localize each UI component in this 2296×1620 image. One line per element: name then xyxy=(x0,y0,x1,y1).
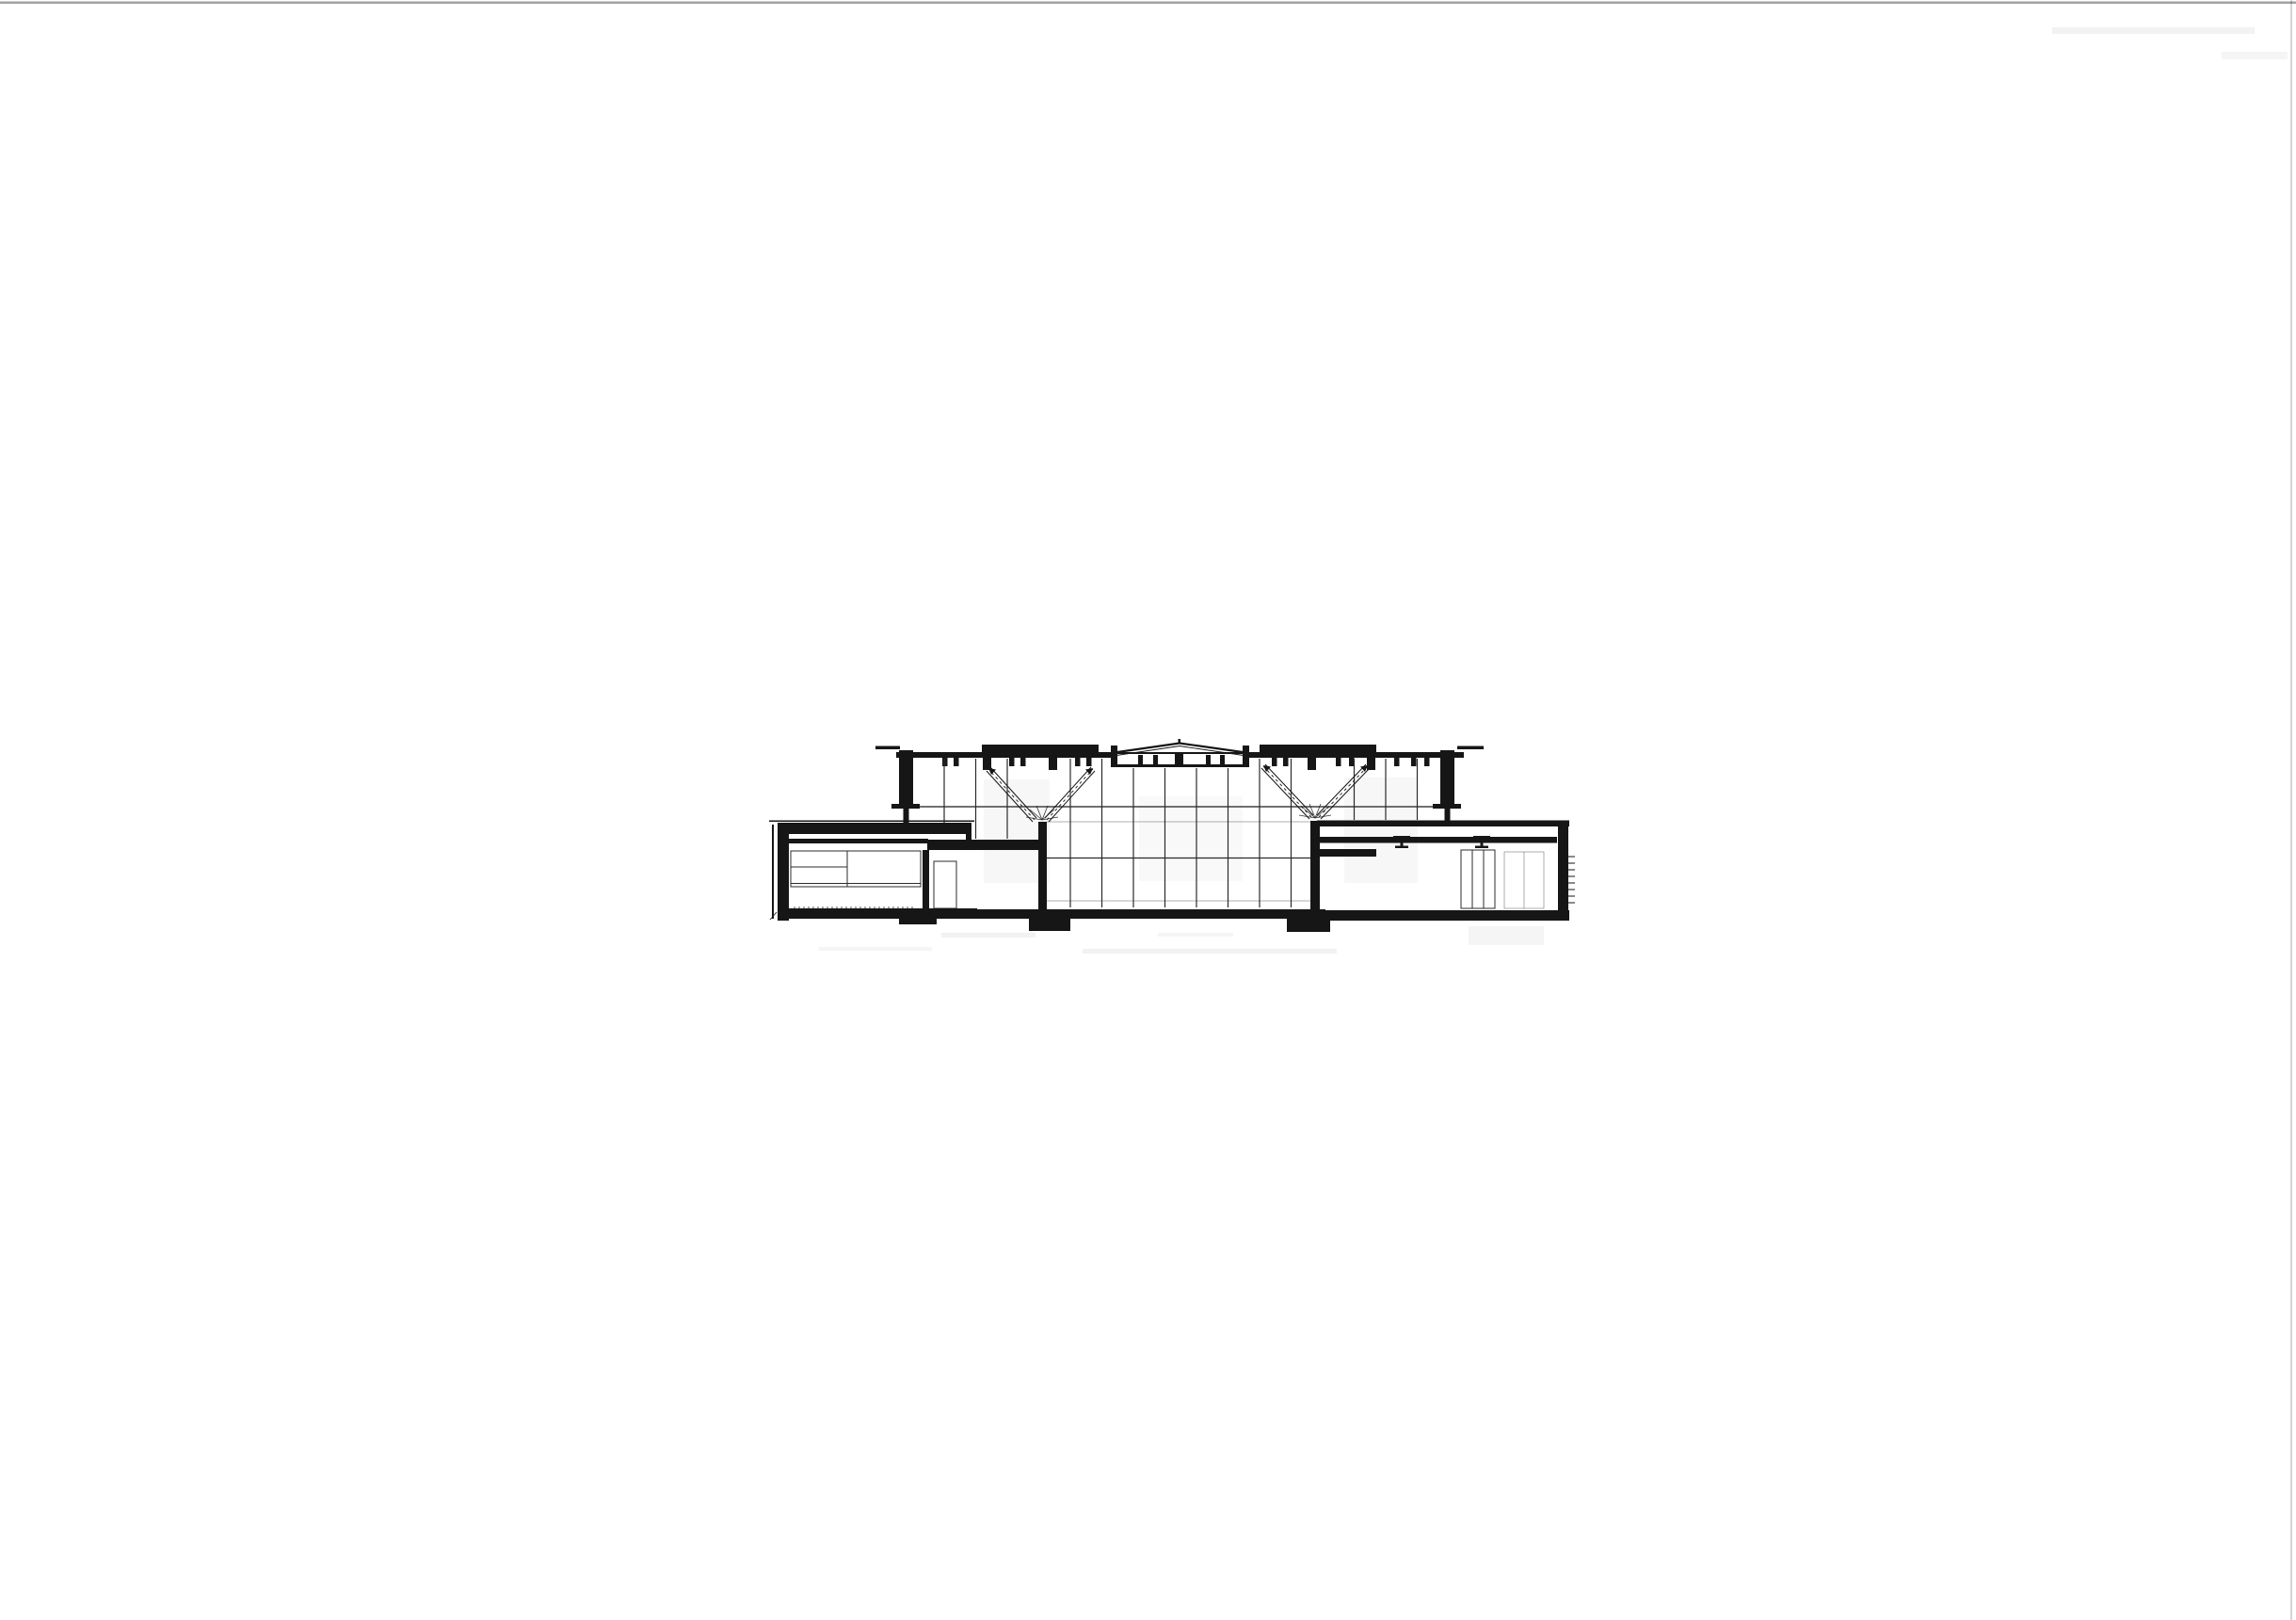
pier-right-foot xyxy=(1433,804,1461,809)
left-wing-counter-details xyxy=(791,851,921,887)
left-wing-outer-skin xyxy=(772,825,774,919)
right-wing-end-wall xyxy=(1558,821,1568,921)
ground-smudge xyxy=(941,933,1036,938)
purlin-end xyxy=(1009,758,1015,766)
purlin-end xyxy=(1349,758,1355,766)
beam-bottom-flange xyxy=(1395,846,1408,849)
lantern-post xyxy=(1153,755,1158,764)
right-wall-insulation-hatch xyxy=(1568,857,1575,903)
texture-patch xyxy=(1139,796,1243,881)
purlin-end xyxy=(1411,758,1417,766)
skylight-band-left xyxy=(982,745,1099,753)
pier-left-foot xyxy=(891,804,920,809)
ground-smudge xyxy=(819,947,932,951)
texture-patch xyxy=(1344,778,1418,883)
purlin-end xyxy=(1020,758,1026,766)
lantern-post xyxy=(1138,755,1143,764)
beam-bottom-flange xyxy=(1475,846,1488,849)
scan-edge-right xyxy=(2290,0,2292,1620)
column-right xyxy=(1310,821,1320,913)
purlin-end xyxy=(1075,758,1081,766)
foundation-pad-west xyxy=(899,916,937,924)
strut-axis xyxy=(1263,766,1311,817)
lantern-post xyxy=(1206,755,1211,764)
left-wing-floor-slab xyxy=(778,908,977,919)
ground-smudge xyxy=(1083,949,1337,954)
left-wing-roof-slab xyxy=(778,823,971,834)
beam-web xyxy=(1401,838,1404,846)
girder-end xyxy=(1367,758,1375,770)
scan-smudge-top-right-1 xyxy=(2052,27,2255,34)
lantern-post-center xyxy=(1175,754,1183,764)
skylight-band-right xyxy=(1260,745,1376,753)
architectural-section-svg xyxy=(0,0,2296,1620)
girder-end xyxy=(1308,758,1316,770)
pier-left-stem xyxy=(904,809,909,825)
beam-web xyxy=(1481,838,1484,846)
purlin-end xyxy=(1272,758,1277,766)
vestibule-roof-connector xyxy=(966,832,971,842)
vestibule-door xyxy=(934,861,956,908)
right-wing-wardrobe-divisions xyxy=(1472,850,1484,908)
left-wing-end-wall xyxy=(778,824,789,921)
lantern-end-post-left xyxy=(1111,746,1117,765)
eave-line-left xyxy=(875,746,900,750)
purlin-end xyxy=(1424,758,1430,766)
lantern-end-post-right xyxy=(1243,746,1249,765)
foundation-pad-column-left xyxy=(1029,919,1070,931)
lantern-base-line xyxy=(1111,764,1249,767)
purlin-end xyxy=(1394,758,1400,766)
right-wing-roof-slab xyxy=(1317,821,1569,827)
purlin-end xyxy=(954,758,959,766)
purlin-end xyxy=(1283,758,1289,766)
left-wing-ceiling xyxy=(789,839,928,843)
scan-edge-top xyxy=(0,2,2296,5)
purlin-end xyxy=(1086,758,1092,766)
girder-end xyxy=(1049,758,1057,770)
purlin-end xyxy=(1336,758,1341,766)
right-wing-floor-slab xyxy=(1317,910,1569,921)
right-wing-wardrobe xyxy=(1461,850,1495,908)
right-wing-door-lintel xyxy=(1320,849,1376,857)
right-wing-ceiling xyxy=(1320,837,1557,843)
ground-smudge xyxy=(1158,933,1233,937)
pier-right xyxy=(1440,750,1454,805)
scanned-page xyxy=(0,0,2296,1620)
purlin-end xyxy=(942,758,948,766)
foundation-pad-column-right xyxy=(1287,919,1330,932)
eave-line-right xyxy=(1457,746,1484,750)
lantern-post xyxy=(1220,755,1225,764)
pier-left xyxy=(899,750,913,805)
hall-floor-slab xyxy=(968,909,1325,919)
roof-beam-ends xyxy=(942,758,1430,770)
column-left xyxy=(1038,822,1047,913)
lantern-ridge-outer xyxy=(1111,744,1249,754)
vestibule-partition xyxy=(923,850,929,912)
scan-smudge-top-right-2 xyxy=(2222,52,2288,59)
left-wing-counter xyxy=(791,851,921,887)
girder-end xyxy=(983,758,991,770)
lantern-apex-tick xyxy=(1179,739,1181,744)
ground-smudge xyxy=(1469,926,1544,945)
floor-and-foundation xyxy=(778,908,1569,932)
vestibule-drop-band xyxy=(927,840,1040,850)
left-wing-roof-top-line xyxy=(769,821,974,823)
